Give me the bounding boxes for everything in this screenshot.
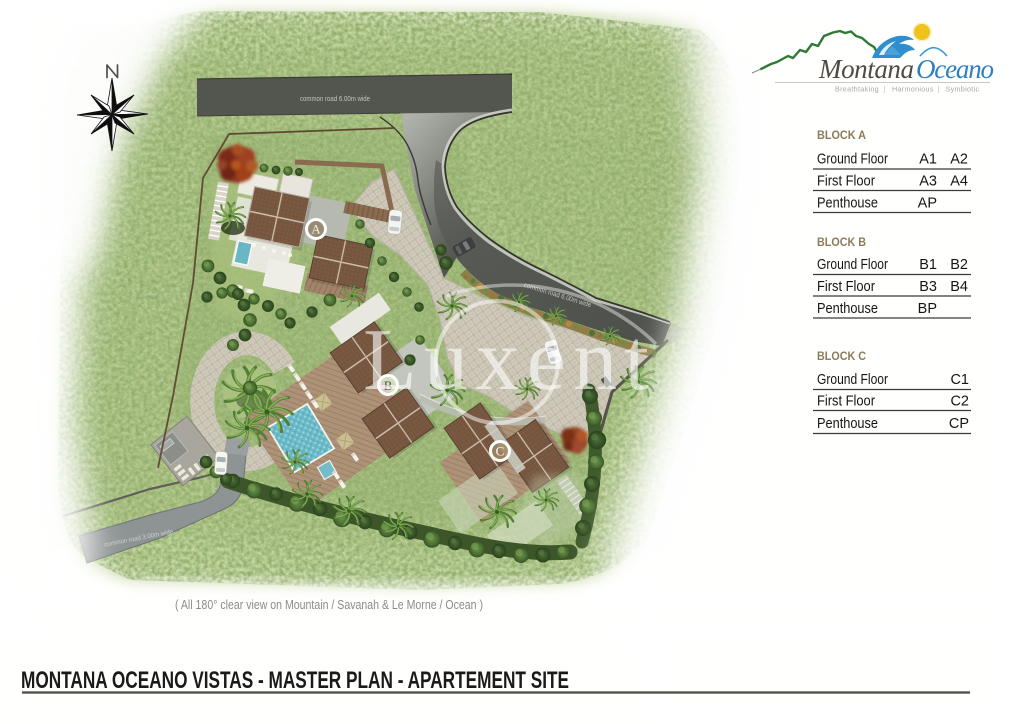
svg-text:Montana: Montana [818,54,914,84]
svg-text:Breathtaking: Breathtaking [835,85,879,94]
svg-text:First Floor: First Floor [817,278,875,295]
svg-text:Symbiotic: Symbiotic [946,85,980,94]
svg-text:A: A [311,222,321,237]
svg-text:Penthouse: Penthouse [817,300,878,317]
svg-text:( All 180° clear view on Mount: ( All 180° clear view on Mountain / Sava… [175,598,483,612]
svg-text:common road 6.00m wide: common road 6.00m wide [300,96,370,103]
svg-text:Harmonious: Harmonious [892,85,934,94]
svg-text:Penthouse: Penthouse [817,195,878,212]
svg-text:|: | [884,85,886,94]
svg-text:BP: BP [918,301,937,317]
svg-text:BLOCK C: BLOCK C [817,349,866,363]
svg-text:B4: B4 [950,279,968,295]
svg-text:A4: A4 [950,174,968,190]
svg-text:BLOCK A: BLOCK A [817,128,866,142]
svg-text:CP: CP [949,416,969,432]
svg-text:First Floor: First Floor [817,173,875,190]
svg-text:C1: C1 [950,372,969,388]
svg-text:Ground Floor: Ground Floor [817,256,888,273]
svg-text:B1: B1 [919,257,937,273]
svg-text:A1: A1 [919,152,937,168]
svg-text:MONTANA OCEANO VISTAS - MASTER: MONTANA OCEANO VISTAS - MASTER PLAN - AP… [21,667,569,694]
svg-text:C2: C2 [950,394,969,410]
svg-text:BLOCK B: BLOCK B [817,235,866,249]
svg-text:|: | [938,85,940,94]
svg-text:B2: B2 [950,257,968,273]
svg-text:AP: AP [918,196,937,212]
svg-text:A2: A2 [950,152,968,168]
svg-text:A3: A3 [919,174,937,190]
svg-text:First Floor: First Floor [817,393,875,410]
svg-text:Oceano: Oceano [916,54,994,84]
svg-text:Ground Floor: Ground Floor [817,151,888,168]
svg-text:Ground Floor: Ground Floor [817,371,888,388]
svg-text:B3: B3 [919,279,937,295]
svg-text:Penthouse: Penthouse [817,415,878,432]
svg-text:C: C [496,444,505,459]
svg-text:Luxent: Luxent [363,312,655,409]
